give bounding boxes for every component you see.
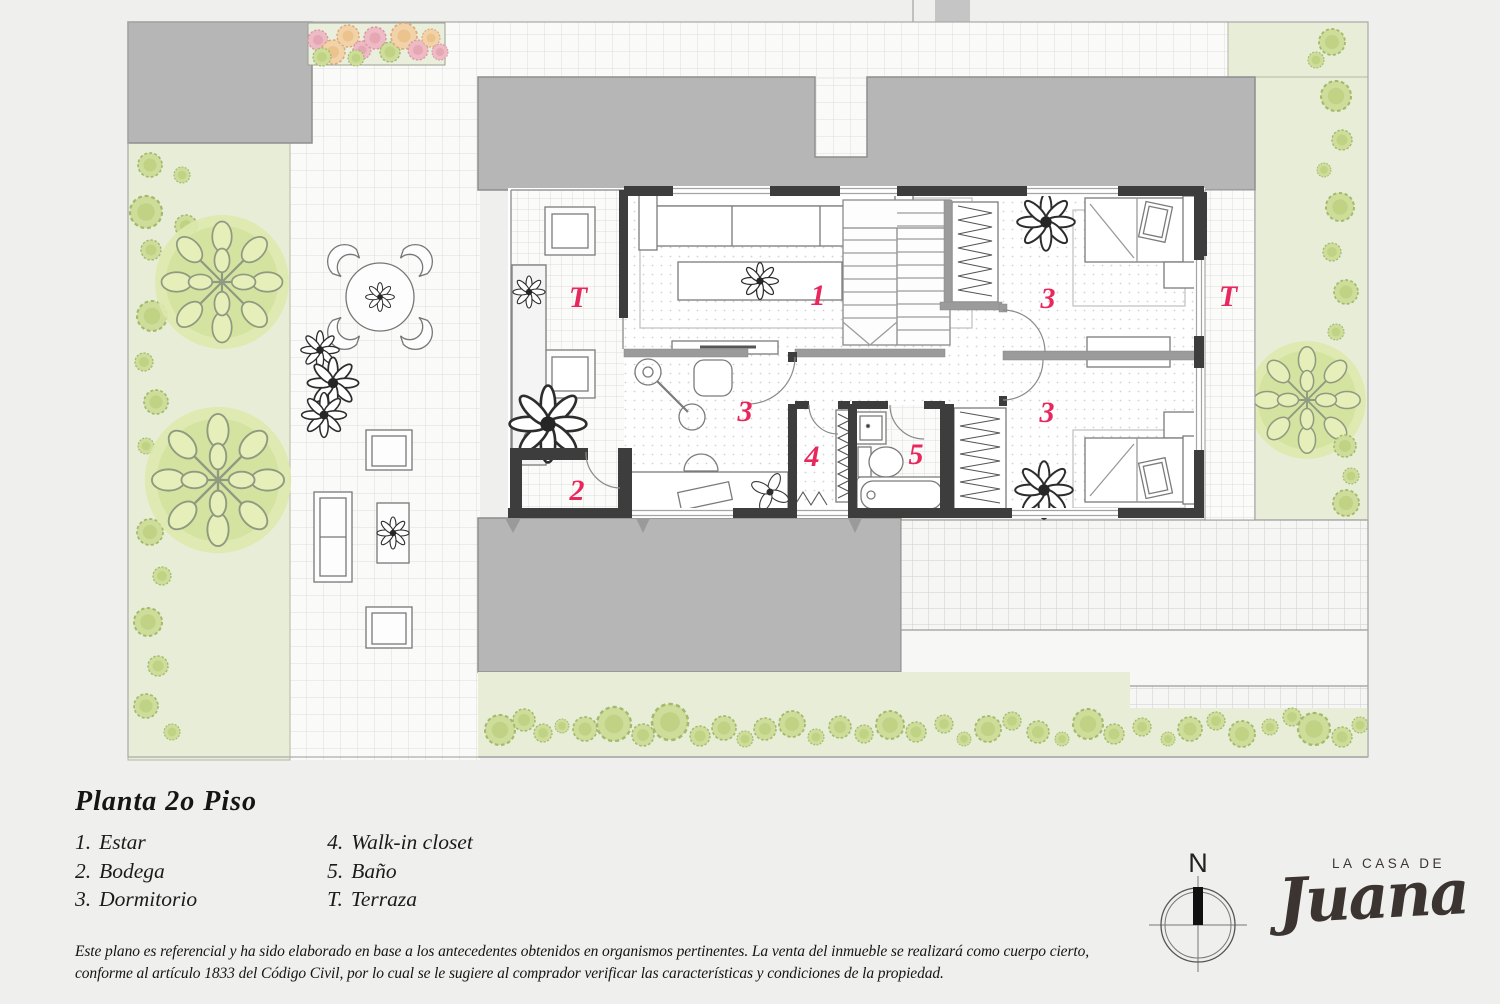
garden-left [128, 143, 291, 760]
room-label-dormitorio-top: 3 [1041, 282, 1056, 316]
disclaimer-text: Este plano es referencial y ha sido elab… [75, 941, 1135, 984]
compass-north-label: N [1188, 848, 1208, 878]
room-label-bodega: 2 [570, 474, 585, 508]
room-label-terraza-right: T [1219, 280, 1237, 314]
floor-plan-sheet: T 1 2 3 4 5 3 3 T Planta 2o Piso 1.Estar… [0, 0, 1500, 1004]
tree-icon [145, 407, 291, 553]
legend-item-dormitorio: 3.Dormitorio [75, 885, 197, 914]
tree-icon [155, 215, 289, 349]
page-title: Planta 2o Piso [75, 786, 257, 818]
legend-item-terraza: T.Terraza [327, 885, 473, 914]
room-label-terraza-left: T [569, 281, 587, 315]
brand-logo-script: Juana [1276, 855, 1480, 938]
room-label-estar: 1 [811, 279, 826, 313]
room-label-dormitorio-bottom: 3 [1040, 396, 1055, 430]
legend-item-estar: 1.Estar [75, 828, 197, 857]
legend-column-2: 4.Walk-in closet 5.Baño T.Terraza [327, 828, 473, 914]
room-label-walkin: 4 [805, 440, 820, 474]
site-plan-drawing [0, 0, 1500, 770]
room-label-dormitorio-left: 3 [738, 395, 753, 429]
north-compass-icon: N [1148, 846, 1258, 978]
room-label-bano: 5 [909, 438, 924, 472]
legend-item-walkin: 4.Walk-in closet [327, 828, 473, 857]
legend-item-bano: 5.Baño [327, 857, 473, 886]
legend-column-1: 1.Estar 2.Bodega 3.Dormitorio [75, 828, 197, 914]
legend-item-bodega: 2.Bodega [75, 857, 197, 886]
brand-logo: LA CASA DE Juana [1278, 856, 1478, 938]
garage-roof [128, 22, 312, 143]
legend: 1.Estar 2.Bodega 3.Dormitorio 4.Walk-in … [75, 828, 473, 914]
flower-bed [308, 23, 448, 66]
